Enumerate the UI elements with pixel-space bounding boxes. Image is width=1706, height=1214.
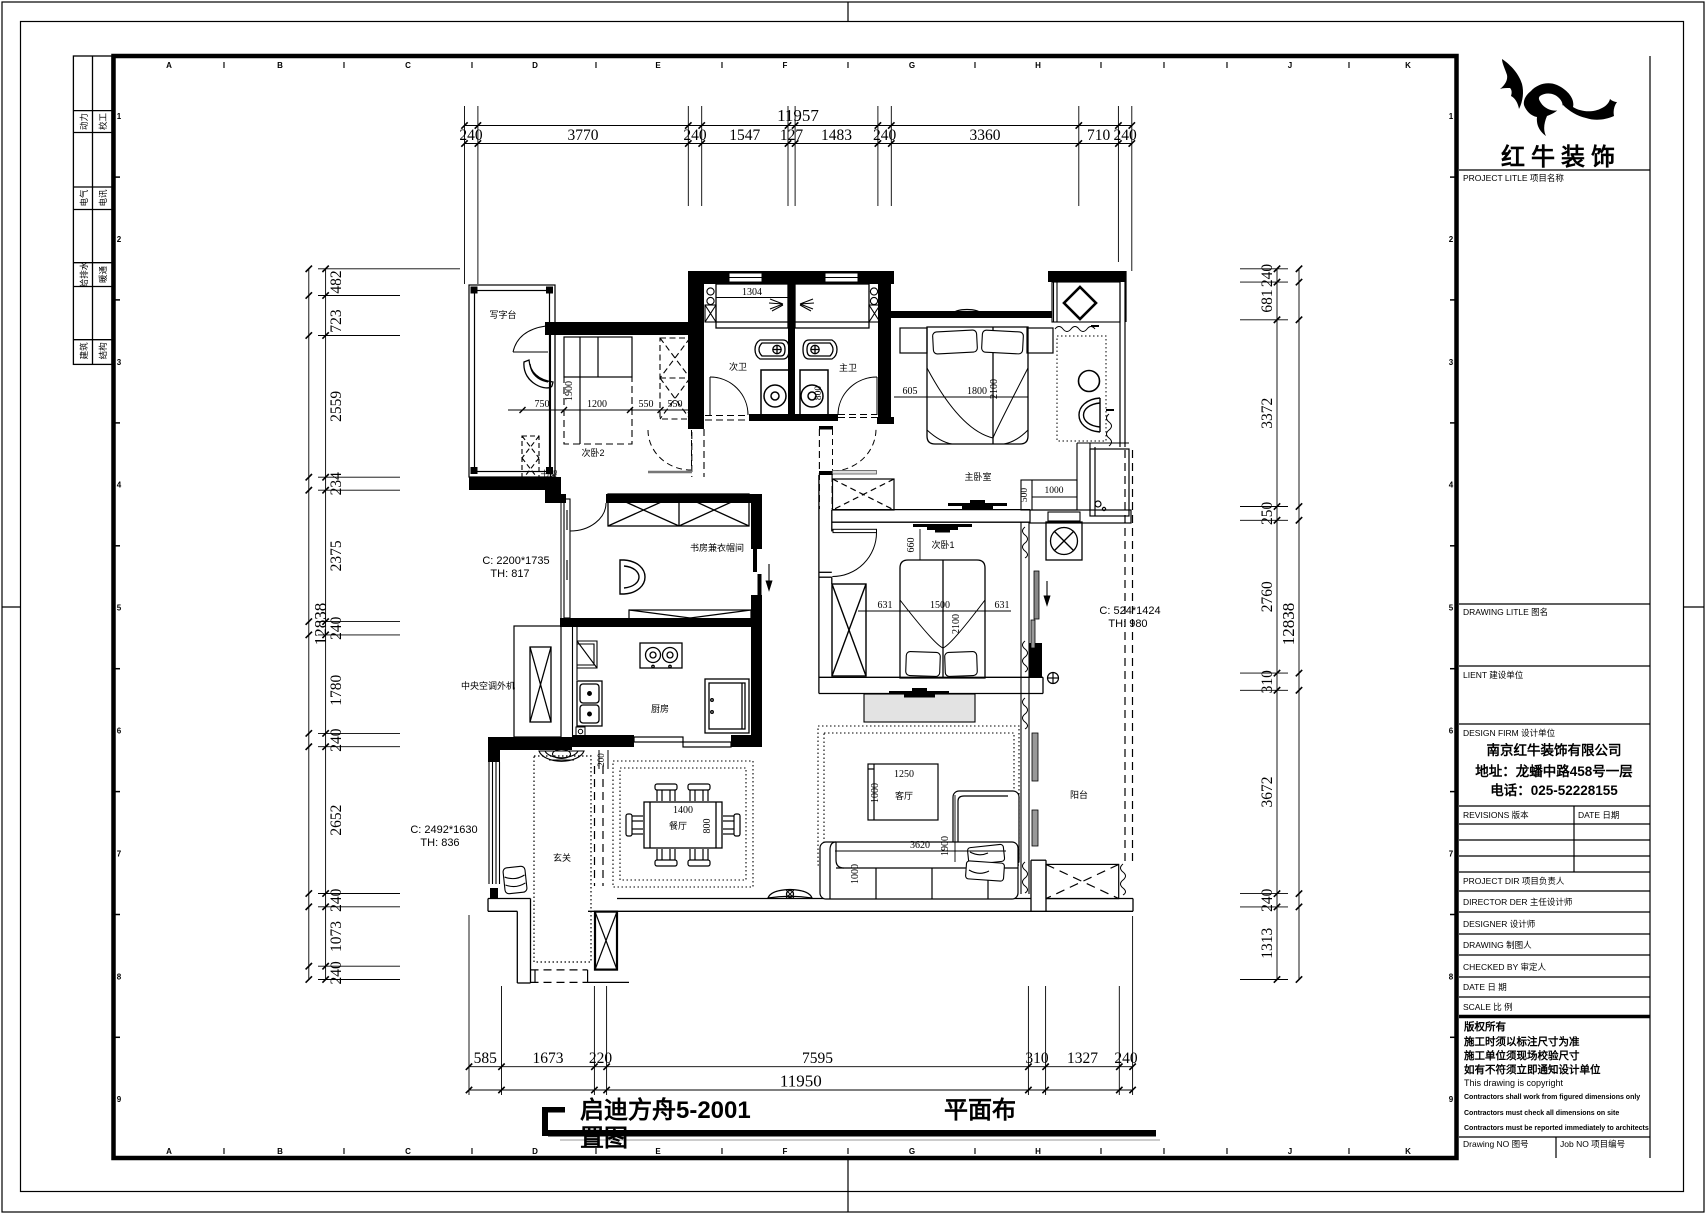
svg-text:如有不符须立即通知设计单位: 如有不符须立即通知设计单位 (1464, 1063, 1601, 1076)
svg-text:7: 7 (117, 849, 122, 858)
svg-text:电气: 电气 (79, 189, 89, 207)
svg-text:I: I (1226, 61, 1228, 70)
svg-text:PROJECT LITLE 项目名称: PROJECT LITLE 项目名称 (1463, 173, 1564, 183)
svg-text:240: 240 (1259, 264, 1276, 288)
svg-text:1673: 1673 (533, 1050, 564, 1067)
svg-text:2100: 2100 (989, 379, 1000, 399)
svg-text:6: 6 (1449, 727, 1454, 736)
svg-text:4: 4 (1449, 481, 1454, 490)
svg-text:I: I (1100, 1147, 1102, 1156)
svg-text:I: I (343, 1147, 345, 1156)
svg-text:I: I (1226, 1147, 1228, 1156)
svg-text:TH: 817: TH: 817 (490, 568, 529, 580)
svg-text:客厅: 客厅 (895, 790, 913, 801)
svg-text:240: 240 (683, 127, 707, 144)
svg-text:631: 631 (995, 600, 1010, 611)
svg-text:Contractors must check all dim: Contractors must check all dimensions on… (1464, 1110, 1619, 1117)
svg-text:550: 550 (639, 399, 654, 410)
svg-text:B: B (277, 1147, 283, 1156)
svg-text:厨房: 厨房 (651, 703, 669, 714)
svg-text:This drawing is copyright: This drawing is copyright (1464, 1078, 1564, 1088)
svg-text:2559: 2559 (328, 391, 345, 422)
svg-text:餐厅: 餐厅 (669, 820, 687, 831)
svg-text:3: 3 (1449, 358, 1454, 367)
svg-text:I: I (471, 1147, 473, 1156)
svg-text:C: 524*1424: C: 524*1424 (1099, 605, 1160, 617)
svg-text:校工: 校工 (98, 113, 108, 131)
svg-text:9: 9 (117, 1095, 122, 1104)
svg-text:1547: 1547 (729, 127, 760, 144)
svg-text:1900: 1900 (940, 836, 951, 856)
svg-text:DIRECTOR DER 主任设计师: DIRECTOR DER 主任设计师 (1463, 897, 1573, 907)
svg-text:I: I (1163, 1147, 1165, 1156)
svg-text:240: 240 (328, 961, 345, 985)
svg-text:6: 6 (117, 727, 122, 736)
svg-text:681: 681 (1259, 289, 1276, 312)
svg-text:710: 710 (1087, 127, 1111, 144)
svg-text:B: B (277, 61, 283, 70)
svg-text:SCALE 比 例: SCALE 比 例 (1463, 1002, 1513, 1012)
svg-text:置图: 置图 (580, 1125, 628, 1152)
svg-text:482: 482 (328, 270, 345, 293)
svg-text:LIENT 建设单位: LIENT 建设单位 (1463, 670, 1524, 680)
svg-text:2760: 2760 (1259, 581, 1276, 612)
svg-text:F: F (783, 1147, 788, 1156)
svg-text:5: 5 (117, 604, 122, 613)
svg-text:C: 2200*1735: C: 2200*1735 (482, 555, 549, 567)
svg-text:动力: 动力 (79, 113, 89, 130)
svg-text:240: 240 (328, 616, 345, 640)
svg-text:800: 800 (702, 819, 713, 834)
svg-text:I: I (974, 61, 976, 70)
svg-text:H: H (1035, 1147, 1041, 1156)
svg-text:G: G (909, 1147, 915, 1156)
svg-text:1483: 1483 (821, 127, 852, 144)
svg-text:8: 8 (1449, 972, 1454, 981)
svg-text:200: 200 (596, 753, 606, 767)
svg-text:240: 240 (873, 127, 897, 144)
svg-text:DRAWING LITLE 图名: DRAWING LITLE 图名 (1463, 607, 1548, 617)
svg-text:I: I (595, 61, 597, 70)
svg-text:TH: 980: TH: 980 (1108, 618, 1147, 630)
svg-text:1780: 1780 (328, 674, 345, 705)
svg-text:2: 2 (1449, 235, 1454, 244)
svg-text:暖通: 暖通 (98, 266, 108, 284)
svg-text:主卫: 主卫 (839, 362, 857, 373)
svg-text:605: 605 (903, 386, 918, 397)
svg-text:F: F (783, 61, 788, 70)
svg-text:D: D (532, 61, 538, 70)
svg-text:C: C (405, 1147, 411, 1156)
svg-text:书房兼衣帽间: 书房兼衣帽间 (690, 542, 744, 553)
svg-text:234: 234 (328, 472, 345, 496)
svg-text:I: I (471, 61, 473, 70)
svg-text:DESIGNER 设计师: DESIGNER 设计师 (1463, 919, 1536, 929)
svg-text:550: 550 (668, 399, 683, 410)
svg-text:1000: 1000 (1045, 486, 1064, 496)
svg-text:Drawing NO 图号: Drawing NO 图号 (1463, 1139, 1529, 1149)
svg-text:I: I (1348, 61, 1350, 70)
svg-text:1000: 1000 (850, 864, 861, 884)
svg-text:750: 750 (535, 399, 550, 410)
svg-text:240: 240 (459, 127, 483, 144)
svg-text:240: 240 (1113, 127, 1137, 144)
svg-text:书架: 书架 (540, 469, 558, 479)
svg-text:G: G (909, 61, 915, 70)
svg-text:1200: 1200 (587, 399, 607, 410)
svg-text:启迪方舟5-2001: 启迪方舟5-2001 (580, 1096, 751, 1124)
svg-text:2: 2 (117, 235, 122, 244)
svg-text:地址：龙蟠中路458号一层: 地址：龙蟠中路458号一层 (1475, 763, 1633, 779)
svg-text:1900: 1900 (564, 381, 575, 401)
svg-text:I: I (974, 1147, 976, 1156)
svg-text:1304: 1304 (742, 287, 762, 298)
svg-text:660: 660 (906, 538, 917, 553)
svg-text:1800: 1800 (967, 386, 987, 397)
svg-text:11957: 11957 (777, 106, 819, 125)
svg-text:次卧2: 次卧2 (581, 447, 604, 458)
svg-text:3360: 3360 (970, 127, 1001, 144)
svg-text:1000: 1000 (870, 783, 881, 803)
svg-text:CHECKED BY 审定人: CHECKED BY 审定人 (1463, 962, 1546, 972)
svg-text:723: 723 (328, 309, 345, 333)
svg-text:7595: 7595 (802, 1050, 833, 1067)
svg-text:I: I (343, 61, 345, 70)
svg-text:K: K (1405, 61, 1411, 70)
svg-text:E: E (655, 61, 661, 70)
svg-text:I: I (847, 1147, 849, 1156)
svg-text:220: 220 (589, 1050, 613, 1067)
svg-text:施工时须以标注尺寸为准: 施工时须以标注尺寸为准 (1464, 1035, 1580, 1048)
svg-text:2652: 2652 (328, 805, 345, 836)
svg-text:建筑: 建筑 (79, 342, 89, 360)
svg-text:DESIGN FIRM 设计单位: DESIGN FIRM 设计单位 (1463, 728, 1556, 738)
svg-text:D: D (532, 1147, 538, 1156)
svg-text:631: 631 (878, 600, 893, 611)
svg-text:2375: 2375 (328, 540, 345, 571)
svg-text:500: 500 (1020, 488, 1030, 503)
svg-text:南京红牛装饰有限公司: 南京红牛装饰有限公司 (1487, 742, 1622, 758)
svg-text:I: I (223, 1147, 225, 1156)
svg-text:给排水: 给排水 (79, 261, 89, 287)
svg-text:电话：025-52228155: 电话：025-52228155 (1490, 782, 1618, 798)
svg-text:1327: 1327 (1067, 1050, 1098, 1067)
svg-text:J: J (1288, 61, 1292, 70)
svg-text:310: 310 (1259, 670, 1276, 694)
svg-text:240: 240 (328, 888, 345, 912)
svg-text:I: I (1163, 61, 1165, 70)
svg-text:Contractors must be reported i: Contractors must be reported immediately… (1464, 1125, 1649, 1132)
svg-text:4: 4 (117, 481, 122, 490)
svg-text:11950: 11950 (780, 1072, 822, 1091)
svg-text:H: H (1035, 61, 1041, 70)
svg-text:次卧1: 次卧1 (931, 539, 954, 550)
svg-text:1250: 1250 (894, 769, 914, 780)
svg-text:240: 240 (328, 728, 345, 752)
svg-text:平面布: 平面布 (944, 1096, 1016, 1124)
svg-text:3: 3 (117, 358, 122, 367)
svg-text:J: J (1288, 1147, 1292, 1156)
svg-text:DRAWING 制图人: DRAWING 制图人 (1463, 940, 1532, 950)
svg-text:310: 310 (1025, 1050, 1049, 1067)
svg-text:电讯: 电讯 (98, 189, 108, 207)
svg-text:次卫: 次卫 (729, 361, 747, 372)
svg-text:3770: 3770 (568, 127, 599, 144)
svg-text:结构: 结构 (98, 342, 108, 359)
svg-text:PROJECT DIR 项目负责人: PROJECT DIR 项目负责人 (1463, 876, 1565, 886)
svg-text:主卧室: 主卧室 (964, 471, 991, 482)
svg-text:800: 800 (814, 386, 824, 401)
svg-text:9: 9 (1449, 1095, 1454, 1104)
svg-text:1400: 1400 (673, 805, 693, 816)
svg-text:K: K (1405, 1147, 1411, 1156)
svg-text:I: I (1348, 1147, 1350, 1156)
svg-text:127: 127 (780, 127, 804, 144)
svg-text:A: A (166, 61, 172, 70)
svg-text:阳台: 阳台 (1070, 789, 1088, 800)
svg-text:3372: 3372 (1259, 398, 1276, 429)
svg-text:250: 250 (1259, 502, 1276, 526)
svg-text:C: 2492*1630: C: 2492*1630 (410, 824, 477, 836)
svg-text:I: I (223, 61, 225, 70)
svg-text:1313: 1313 (1259, 927, 1276, 958)
svg-text:3620: 3620 (910, 840, 930, 851)
svg-text:Contractors shall work from fi: Contractors shall work from figured dime… (1464, 1094, 1640, 1101)
svg-text:施工单位须现场校验尺寸: 施工单位须现场校验尺寸 (1464, 1049, 1580, 1062)
svg-text:1: 1 (117, 112, 122, 121)
svg-text:版权所有: 版权所有 (1464, 1020, 1506, 1033)
svg-text:REVISIONS 版本: REVISIONS 版本 (1463, 810, 1529, 820)
svg-text:3672: 3672 (1259, 777, 1276, 808)
svg-text:I: I (847, 61, 849, 70)
svg-text:TH: 836: TH: 836 (420, 837, 459, 849)
svg-text:C: C (405, 61, 411, 70)
svg-text:DATE 日 期: DATE 日 期 (1463, 982, 1507, 992)
svg-text:12838: 12838 (311, 603, 330, 646)
svg-text:585: 585 (474, 1050, 498, 1067)
svg-text:玄关: 玄关 (553, 852, 571, 863)
svg-text:Job NO 项目编号: Job NO 项目编号 (1560, 1139, 1625, 1149)
svg-text:E: E (655, 1147, 661, 1156)
svg-text:1500: 1500 (930, 600, 950, 611)
svg-text:1073: 1073 (328, 921, 345, 952)
svg-text:12838: 12838 (1279, 603, 1298, 646)
svg-text:I: I (721, 1147, 723, 1156)
svg-text:8: 8 (117, 972, 122, 981)
svg-text:A: A (166, 1147, 172, 1156)
svg-text:7: 7 (1449, 849, 1454, 858)
svg-text:DATE 日期: DATE 日期 (1578, 810, 1619, 820)
svg-text:240: 240 (1259, 888, 1276, 912)
svg-text:I: I (1100, 61, 1102, 70)
svg-text:2100: 2100 (951, 614, 962, 634)
svg-text:中央空调外机: 中央空调外机 (461, 680, 515, 691)
svg-text:1: 1 (1449, 112, 1454, 121)
svg-text:5: 5 (1449, 604, 1454, 613)
svg-text:240: 240 (1114, 1050, 1138, 1067)
svg-text:I: I (721, 61, 723, 70)
svg-text:写字台: 写字台 (489, 309, 516, 320)
svg-text:红牛装饰: 红牛装饰 (1501, 143, 1621, 171)
